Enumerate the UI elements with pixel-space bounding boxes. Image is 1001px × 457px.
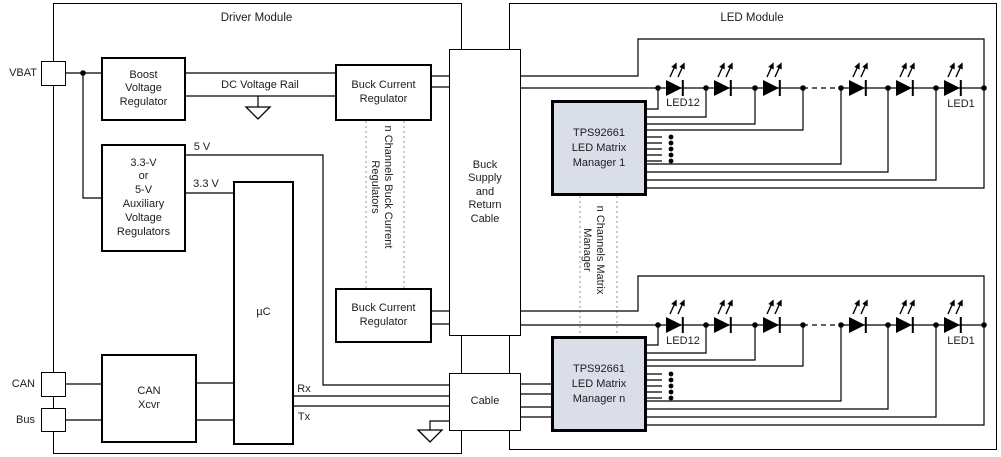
block-line: Voltage [125,82,162,96]
tps92661-manager-1-block: TPS92661 LED Matrix Manager 1 [551,100,647,196]
block-line: and [476,186,494,200]
led-icon [666,66,683,96]
n-channels-buck-current-regulators-label: n Channels Buck Current Regulators [368,122,394,252]
led-icon [849,66,866,96]
led-icon [944,66,961,96]
block-diagram: Driver Module LED Module VBAT CAN Bus Bo… [0,0,1001,457]
junction-dots [80,70,987,328]
block-line: TPS92661 [573,362,625,377]
block-line: Xcvr [138,399,160,413]
3v3-label: 3.3 V [193,178,219,190]
block-line: Manager 1 [573,156,626,171]
5v-label: 5 V [194,141,211,153]
block-line: Buck Current [351,79,415,93]
block-line: µC [256,306,270,320]
block-line: Regulators [117,226,170,240]
block-line: LED Matrix [572,377,626,392]
block-line: Buck [473,159,497,173]
block-line: Boost [129,69,157,83]
block-line: 5-V [135,184,152,198]
block-line: Regulator [360,93,408,107]
microcontroller-block: µC [233,181,294,445]
ground-icon [418,430,442,442]
led-icon [714,66,731,96]
boost-voltage-regulator-block: Boost Voltage Regulator [101,57,186,121]
block-line: Manager n [573,392,626,407]
vbat-port [41,61,66,86]
led12-label-row2: LED12 [666,335,700,347]
driver-module-title: Driver Module [53,12,460,24]
block-line: Return [468,199,501,213]
block-line: Cable [471,395,500,409]
dc-voltage-rail-label: DC Voltage Rail [221,79,299,91]
block-line: Regulator [360,316,408,330]
buck-supply-return-cable-block: Buck Supply and Return Cable [449,49,521,336]
ground-icon [246,107,270,119]
led-icon [666,303,683,333]
block-line: Auxiliary [123,198,165,212]
rx-label: Rx [297,383,310,395]
led-icon [944,303,961,333]
bus-label: Bus [0,414,35,426]
led-icon [849,303,866,333]
led-icon [896,303,913,333]
vbat-label: VBAT [0,67,37,79]
block-line: CAN [137,385,160,399]
block-line: or [139,170,149,184]
buck-current-regulator-top-block: Buck Current Regulator [335,64,432,121]
led-icon [714,303,731,333]
can-xcvr-block: CAN Xcvr [101,354,197,443]
block-line: Supply [468,172,502,186]
block-line: Buck Current [351,302,415,316]
led-icon [763,303,780,333]
can-port [41,372,66,397]
led1-label-row2: LED1 [947,335,975,347]
n-channels-matrix-manager-label: n Channels Matrix Manager [580,200,606,300]
block-line: Voltage [125,212,162,226]
led-icon [896,66,913,96]
cable-block: Cable [449,373,521,431]
block-line: Cable [471,213,500,227]
block-line: 3.3-V [130,157,156,171]
block-line: TPS92661 [573,126,625,141]
led-icon [763,66,780,96]
aux-voltage-regulators-block: 3.3-V or 5-V Auxiliary Voltage Regulator… [101,144,186,252]
can-label: CAN [0,378,35,390]
led1-label-row1: LED1 [947,98,975,110]
led12-label-row1: LED12 [666,97,700,109]
tx-label: Tx [298,411,310,423]
bus-port [41,408,66,432]
buck-current-regulator-bottom-block: Buck Current Regulator [335,288,432,343]
block-line: LED Matrix [572,141,626,156]
led-module-title: LED Module [509,12,995,24]
tps92661-manager-n-block: TPS92661 LED Matrix Manager n [551,336,647,432]
block-line: Regulator [120,96,168,110]
